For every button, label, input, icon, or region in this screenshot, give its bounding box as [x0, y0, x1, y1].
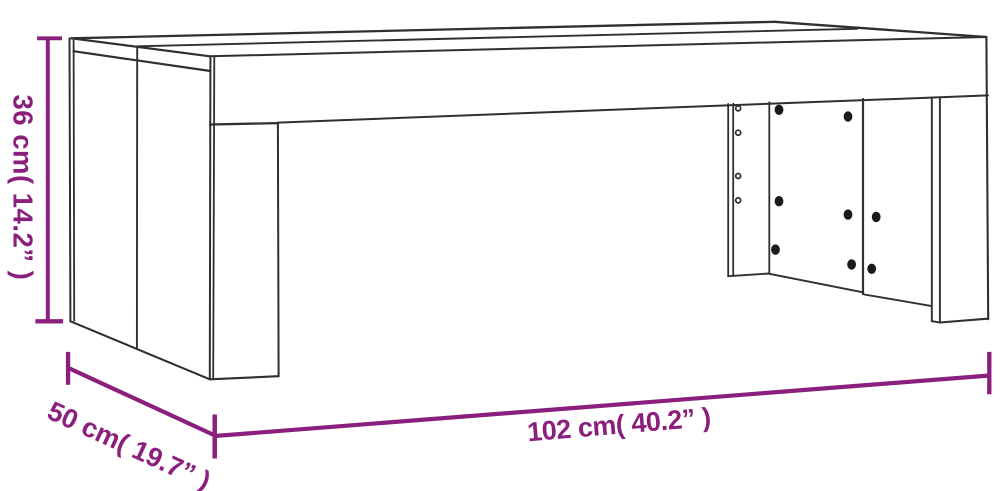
svg-text:36 cm( 14.2” ): 36 cm( 14.2” ) [8, 95, 39, 281]
